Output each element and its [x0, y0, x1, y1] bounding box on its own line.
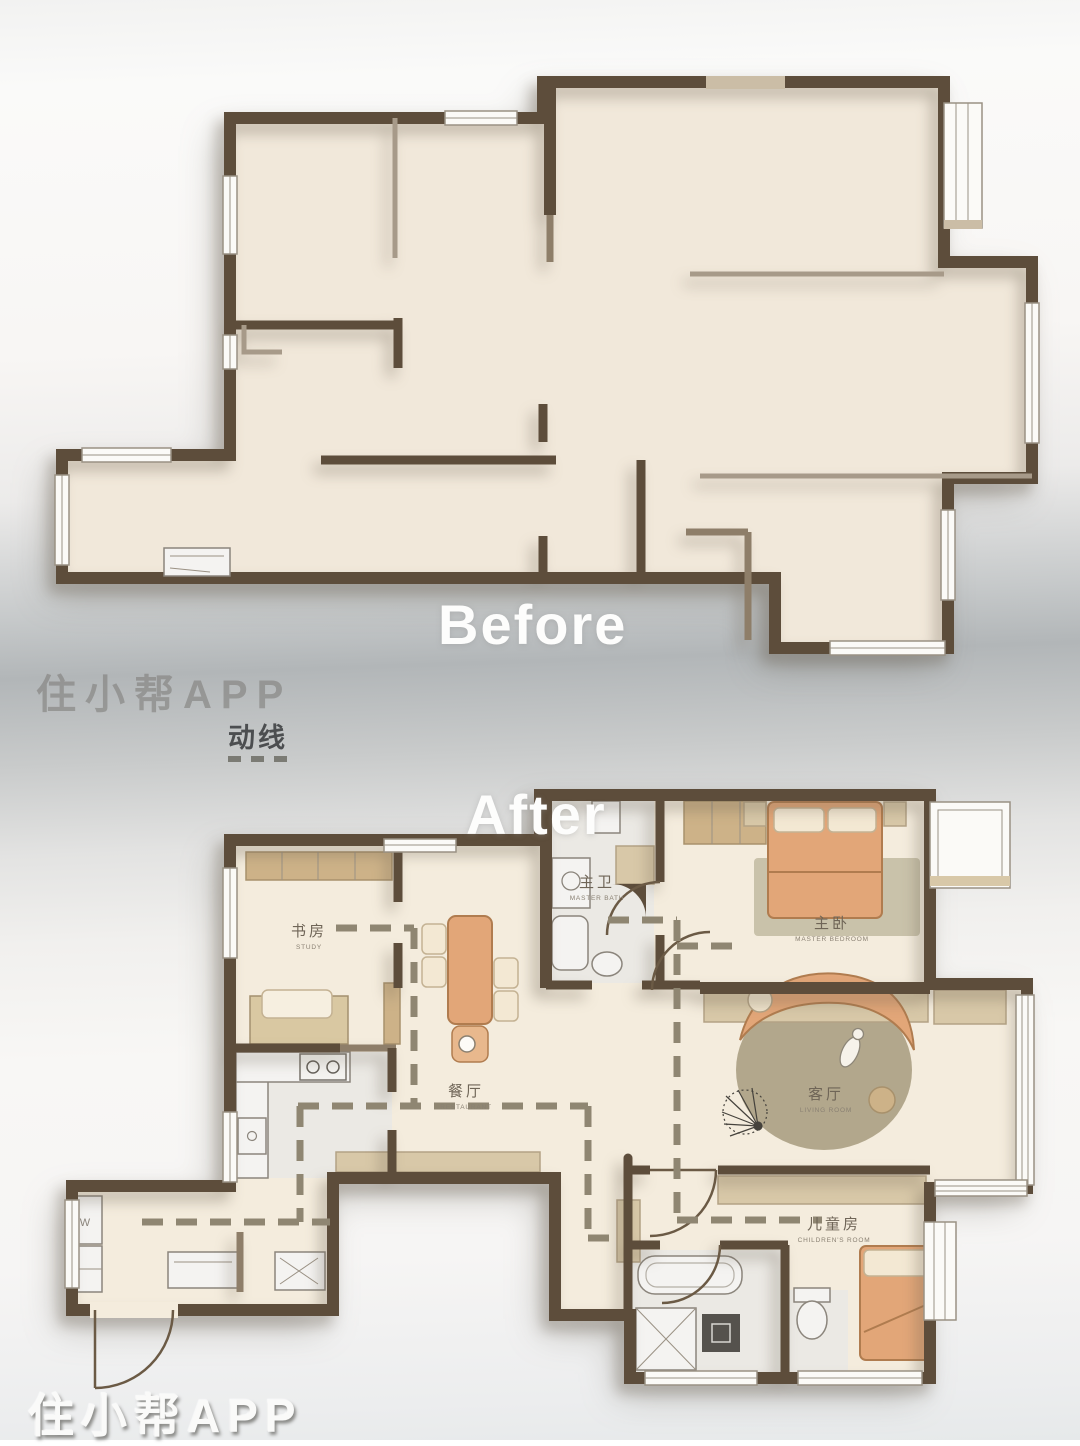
- study-wardrobe: [384, 983, 400, 1044]
- watermark-top: 住小帮APP: [36, 662, 292, 720]
- bathtub-small: [552, 916, 588, 970]
- dining-table: [448, 916, 492, 1024]
- label-study-en: STUDY: [296, 944, 322, 951]
- toilet-tank: [794, 1288, 830, 1302]
- dining-chair: [494, 958, 518, 988]
- kitchen-sink: [238, 1118, 266, 1154]
- teapot: [459, 1036, 475, 1052]
- children-cabinet: [718, 1176, 926, 1204]
- after-title: After: [466, 782, 607, 847]
- washer-label: W: [80, 1217, 91, 1229]
- label-dining-en: RESTAURANT: [440, 1104, 492, 1111]
- label-master-bedroom-en: MASTER BEDROOM: [795, 936, 869, 943]
- label-children-en: CHILDREN'S ROOM: [798, 1237, 871, 1244]
- watermark-bottom: 住小帮APP: [28, 1380, 303, 1446]
- after-plan: W: [65, 795, 1034, 1388]
- laundry-cube: [702, 1314, 740, 1352]
- toilet: [592, 952, 622, 976]
- label-children-cn: 儿童房: [807, 1215, 861, 1233]
- floorplan-canvas: W: [0, 0, 1080, 1440]
- flow-line-dash: [228, 756, 296, 762]
- label-living-en: LIVING ROOM: [800, 1107, 852, 1114]
- corridor-bench: [336, 1152, 540, 1172]
- children-furniture: [860, 1246, 932, 1360]
- before-entry-bench: [164, 548, 230, 576]
- label-master-bedroom-cn: 主卧: [814, 915, 850, 932]
- shoe-cabinet: [275, 1252, 325, 1290]
- entry-bench: [168, 1252, 238, 1288]
- dining-chair: [494, 991, 518, 1021]
- label-living-cn: 客厅: [808, 1086, 844, 1103]
- toilet: [797, 1301, 827, 1339]
- study-pillow: [262, 990, 332, 1018]
- dining-chair: [422, 957, 446, 987]
- label-master-bath-cn: 主卫: [579, 874, 615, 891]
- window-sill: [930, 876, 1010, 886]
- bathtub: [638, 1256, 742, 1294]
- nightstand: [884, 802, 906, 826]
- flow-line-label: 动线: [228, 716, 288, 755]
- nightstand: [744, 802, 766, 826]
- window-inset: [706, 76, 785, 89]
- before-plan: [55, 76, 1039, 655]
- side-table: [869, 1087, 895, 1113]
- label-dining-cn: 餐厅: [448, 1083, 484, 1100]
- label-study-cn: 书房: [291, 923, 327, 940]
- dining-chair: [422, 924, 446, 954]
- before-title: Before: [438, 592, 627, 657]
- door-gap: [90, 1302, 178, 1318]
- living-side-cabinet: [934, 990, 1006, 1024]
- window-sill: [944, 220, 982, 229]
- label-master-bath-en: MASTER BATH: [570, 895, 625, 902]
- bath-shelf: [616, 846, 654, 884]
